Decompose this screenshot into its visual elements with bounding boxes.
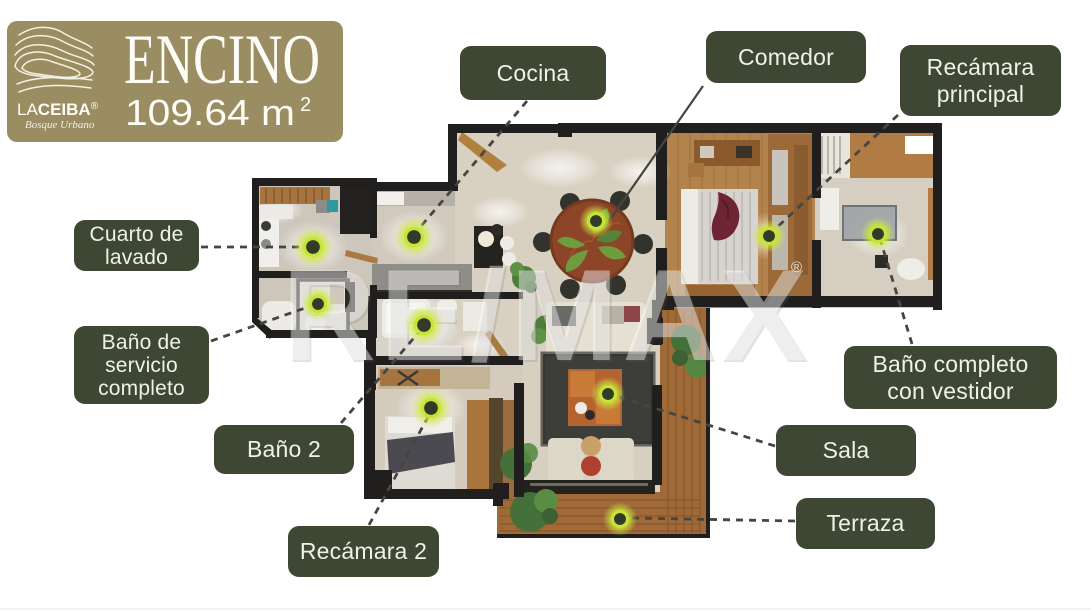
svg-text:ENCINO: ENCINO (124, 21, 320, 99)
svg-text:/MAX: /MAX (470, 242, 811, 388)
svg-text:Bosque Urbano: Bosque Urbano (25, 119, 95, 131)
svg-text:®: ® (791, 259, 802, 276)
svg-text:109.64 m: 109.64 m (125, 92, 295, 133)
svg-text:LACEIBA®: LACEIBA® (17, 100, 99, 119)
svg-text:2: 2 (300, 94, 311, 116)
